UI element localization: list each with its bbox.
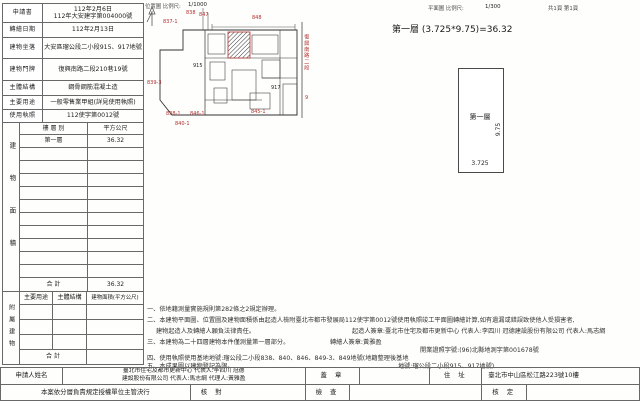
- empty-cell: [20, 305, 53, 320]
- empty-cell: [88, 226, 144, 239]
- empty-cell: [53, 305, 87, 320]
- approve-label: 核 定: [482, 385, 527, 401]
- approval-row: 本案依分層負責規定授權單位主管決行 核 對 檢 查 核 定: [0, 384, 640, 401]
- empty-cell: [88, 265, 144, 278]
- floor-area-table: 建物面積 樓 層 別 平方公尺 第一層 36.32 合 計 36.32: [2, 122, 144, 292]
- empty-cell: [88, 148, 144, 161]
- north-arrow-icon: [147, 7, 155, 26]
- applicant-names: 臺北市住宅及都市更新中心 代表人:李四川 冠德 建設股份有限公司 代表人:馬志綱…: [62, 368, 305, 385]
- field-value-redraw-date: 112年2月13日: [43, 23, 144, 38]
- lot-number-label: 917: [271, 86, 281, 91]
- empty-cell: [87, 335, 144, 350]
- field-value-use-license: 112使字第0012號: [43, 110, 144, 123]
- applicant-address: 臺北市中山區松江路223號10樓: [482, 368, 640, 385]
- note-license-line: 開業證照字號:(96)北縣地測字第001678號: [420, 348, 539, 354]
- floor-plan-width-dimension: 3.725: [458, 160, 502, 167]
- empty-cell: [87, 350, 144, 365]
- parcel-label: 845-1: [251, 110, 266, 115]
- note-line: 一、依地籍測量實施規則第282條之2規定辦理。: [147, 307, 280, 313]
- field-value-structure: 鋼骨鋼筋混凝土造: [43, 81, 144, 96]
- application-form: 申請書 112年2月6日 112年大安建字第004000號 轉繪日期 112年2…: [2, 3, 144, 123]
- parcel-label: 848: [252, 16, 262, 21]
- field-label-redraw-date: 轉繪日期: [3, 23, 43, 38]
- field-value-application: 112年2月6日 112年大安建字第004000號: [43, 4, 144, 23]
- empty-cell: [20, 239, 88, 252]
- empty-cell: [20, 161, 88, 174]
- empty-cell: [20, 174, 88, 187]
- note-line: 四、使用執照使用基地地號:瑠公段二小段838、840、846、849-3、849…: [147, 356, 409, 362]
- field-label-structure: 主體結構: [3, 81, 43, 96]
- lot-number-label: 915: [193, 64, 203, 69]
- empty-cell: [88, 187, 144, 200]
- field-value-door-plate: 復興南路二段210巷19號: [43, 59, 144, 81]
- empty-cell: [20, 200, 88, 213]
- applicant-name-label: 申請人姓名: [1, 368, 63, 385]
- seal-label: 蓋 章: [305, 368, 360, 385]
- seal-area: [360, 368, 430, 385]
- empty-cell: [20, 320, 53, 335]
- parcel-label: 839-3: [147, 81, 162, 86]
- field-value-building-site: 大安區瑠公段二小段915、917地號: [43, 38, 144, 59]
- parcel-label: 847: [199, 13, 209, 18]
- floor-column-header: 樓 層 別: [20, 123, 88, 135]
- approve-area: [527, 385, 640, 401]
- empty-cell: [20, 226, 88, 239]
- application-date: 112年2月6日: [43, 6, 143, 13]
- parcel-label: 838: [186, 11, 196, 16]
- attached-building-table: 附屬建物 主要用途 主體結構 建物面積(平方公尺) 合 計: [2, 291, 144, 365]
- applicant-row: 申請人姓名 臺北市住宅及都市更新中心 代表人:李四川 冠德 建設股份有限公司 代…: [0, 367, 640, 385]
- empty-cell: [53, 335, 87, 350]
- note-line: 二、本建物平面圖、位置圖及建物面積係由起造人檢附臺北市都市發展局112使字第00…: [147, 318, 575, 324]
- empty-cell: [20, 252, 88, 265]
- inspect-area: [350, 385, 482, 401]
- parcel-label: 840-1: [175, 122, 190, 127]
- empty-cell: [20, 187, 88, 200]
- field-label-building-site: 建物坐落: [3, 38, 43, 59]
- applicant-names-line2: 建設股份有限公司 代表人:馬志綱 代理人:黃雅盈: [63, 376, 305, 384]
- attached-use-header: 主要用途: [20, 292, 53, 305]
- empty-cell: [88, 213, 144, 226]
- field-label-main-use: 主要用途: [3, 96, 43, 110]
- floor-total-label: 合 計: [20, 278, 88, 292]
- street-name-label: 復興南路二段: [303, 34, 308, 71]
- empty-cell: [88, 239, 144, 252]
- floor-row-area: 36.32: [88, 135, 144, 148]
- empty-cell: [87, 305, 144, 320]
- attached-area-header: 建物面積(平方公尺): [87, 292, 144, 305]
- attached-structure-header: 主體結構: [53, 292, 87, 305]
- empty-cell: [88, 174, 144, 187]
- parcel-label: 846-1: [190, 112, 205, 117]
- floor-plan-room-label: 第一層: [458, 112, 502, 122]
- parcel-label: 838-1: [166, 112, 181, 117]
- floor-plan-scale: 1/300: [485, 4, 501, 10]
- application-number: 112年大安建字第004000號: [43, 13, 143, 20]
- check-label: 核 對: [190, 385, 305, 401]
- floor-area-formula: 第一層 (3.725*9.75)=36.32: [392, 22, 513, 35]
- field-label-application: 申請書: [3, 4, 43, 23]
- empty-cell: [87, 320, 144, 335]
- floor-row-name: 第一層: [20, 135, 88, 148]
- note-signature-line: 起造人簽章:臺北市住宅及都市更新中心 代表人:李四川 冠德建設股份有限公司 代表…: [352, 329, 605, 335]
- floor-plan-header: 平面圖 比例尺:: [428, 4, 464, 12]
- inspect-label: 檢 查: [305, 385, 350, 401]
- empty-cell: [20, 213, 88, 226]
- attached-table-side-label: 附屬建物: [3, 292, 20, 365]
- survey-result-sheet: 申請書 112年2月6日 112年大安建字第004000號 轉繪日期 112年2…: [0, 0, 640, 401]
- note-line: 建物起造人及轉繪人願負法律責任。: [156, 329, 255, 335]
- empty-cell: [88, 200, 144, 213]
- empty-cell: [88, 161, 144, 174]
- area-column-header: 平方公尺: [88, 123, 144, 135]
- empty-cell: [53, 320, 87, 335]
- street-number-label: 9: [305, 96, 308, 101]
- empty-cell: [20, 265, 88, 278]
- attached-total-label: 合 計: [20, 350, 87, 365]
- applicant-names-line1: 臺北市住宅及都市更新中心 代表人:李四川 冠德: [63, 368, 305, 376]
- field-label-use-license: 使用執照: [3, 110, 43, 123]
- delegation-statement: 本案依分層負責規定授權單位主管決行: [1, 385, 191, 401]
- empty-cell: [20, 148, 88, 161]
- note-signature-line: 轉繪人簽章:黃雅盈: [330, 340, 382, 346]
- empty-cell: [20, 335, 53, 350]
- field-value-main-use: 一般零售業甲組(詳見使用執照): [43, 96, 144, 110]
- floor-table-side-label: 建物面積: [3, 123, 20, 292]
- subject-building-hatch: [228, 32, 250, 58]
- empty-cell: [88, 252, 144, 265]
- floor-plan-height-dimension: 9.75: [495, 123, 502, 136]
- field-label-door-plate: 建物門牌: [3, 59, 43, 81]
- page-count: 共1頁 第1頁: [548, 4, 578, 12]
- parcel-label: 837-1: [163, 20, 178, 25]
- note-line: 三、本建物為二十四層建物本件僅測量第一層部分。: [147, 340, 289, 346]
- address-label: 住 址: [430, 368, 482, 385]
- floor-total-value: 36.32: [88, 278, 144, 292]
